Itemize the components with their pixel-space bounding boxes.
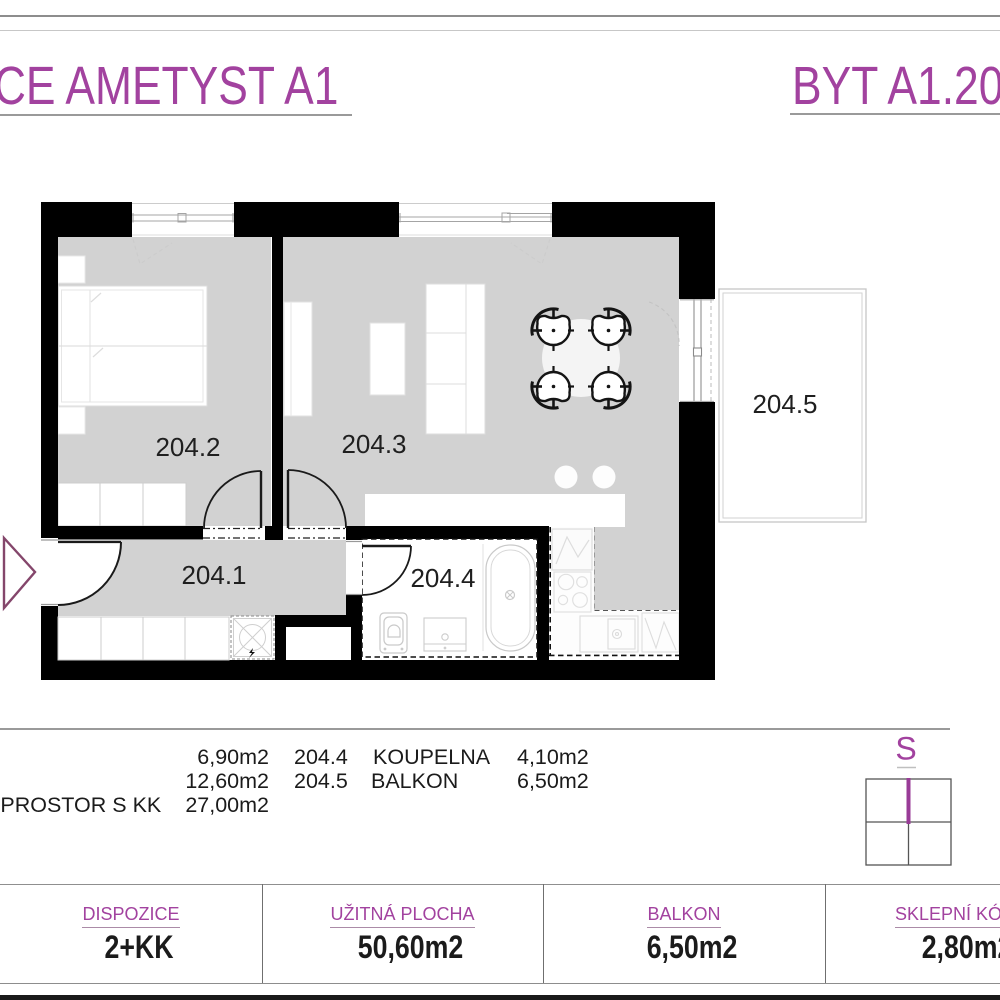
svg-text:204.3: 204.3 bbox=[341, 429, 406, 459]
svg-text:S: S bbox=[895, 731, 916, 767]
svg-text:204.1: 204.1 bbox=[181, 560, 246, 590]
svg-text:204.2: 204.2 bbox=[155, 432, 220, 462]
svg-text:204.5: 204.5 bbox=[752, 389, 817, 419]
svg-text:204.4: 204.4 bbox=[410, 563, 475, 593]
